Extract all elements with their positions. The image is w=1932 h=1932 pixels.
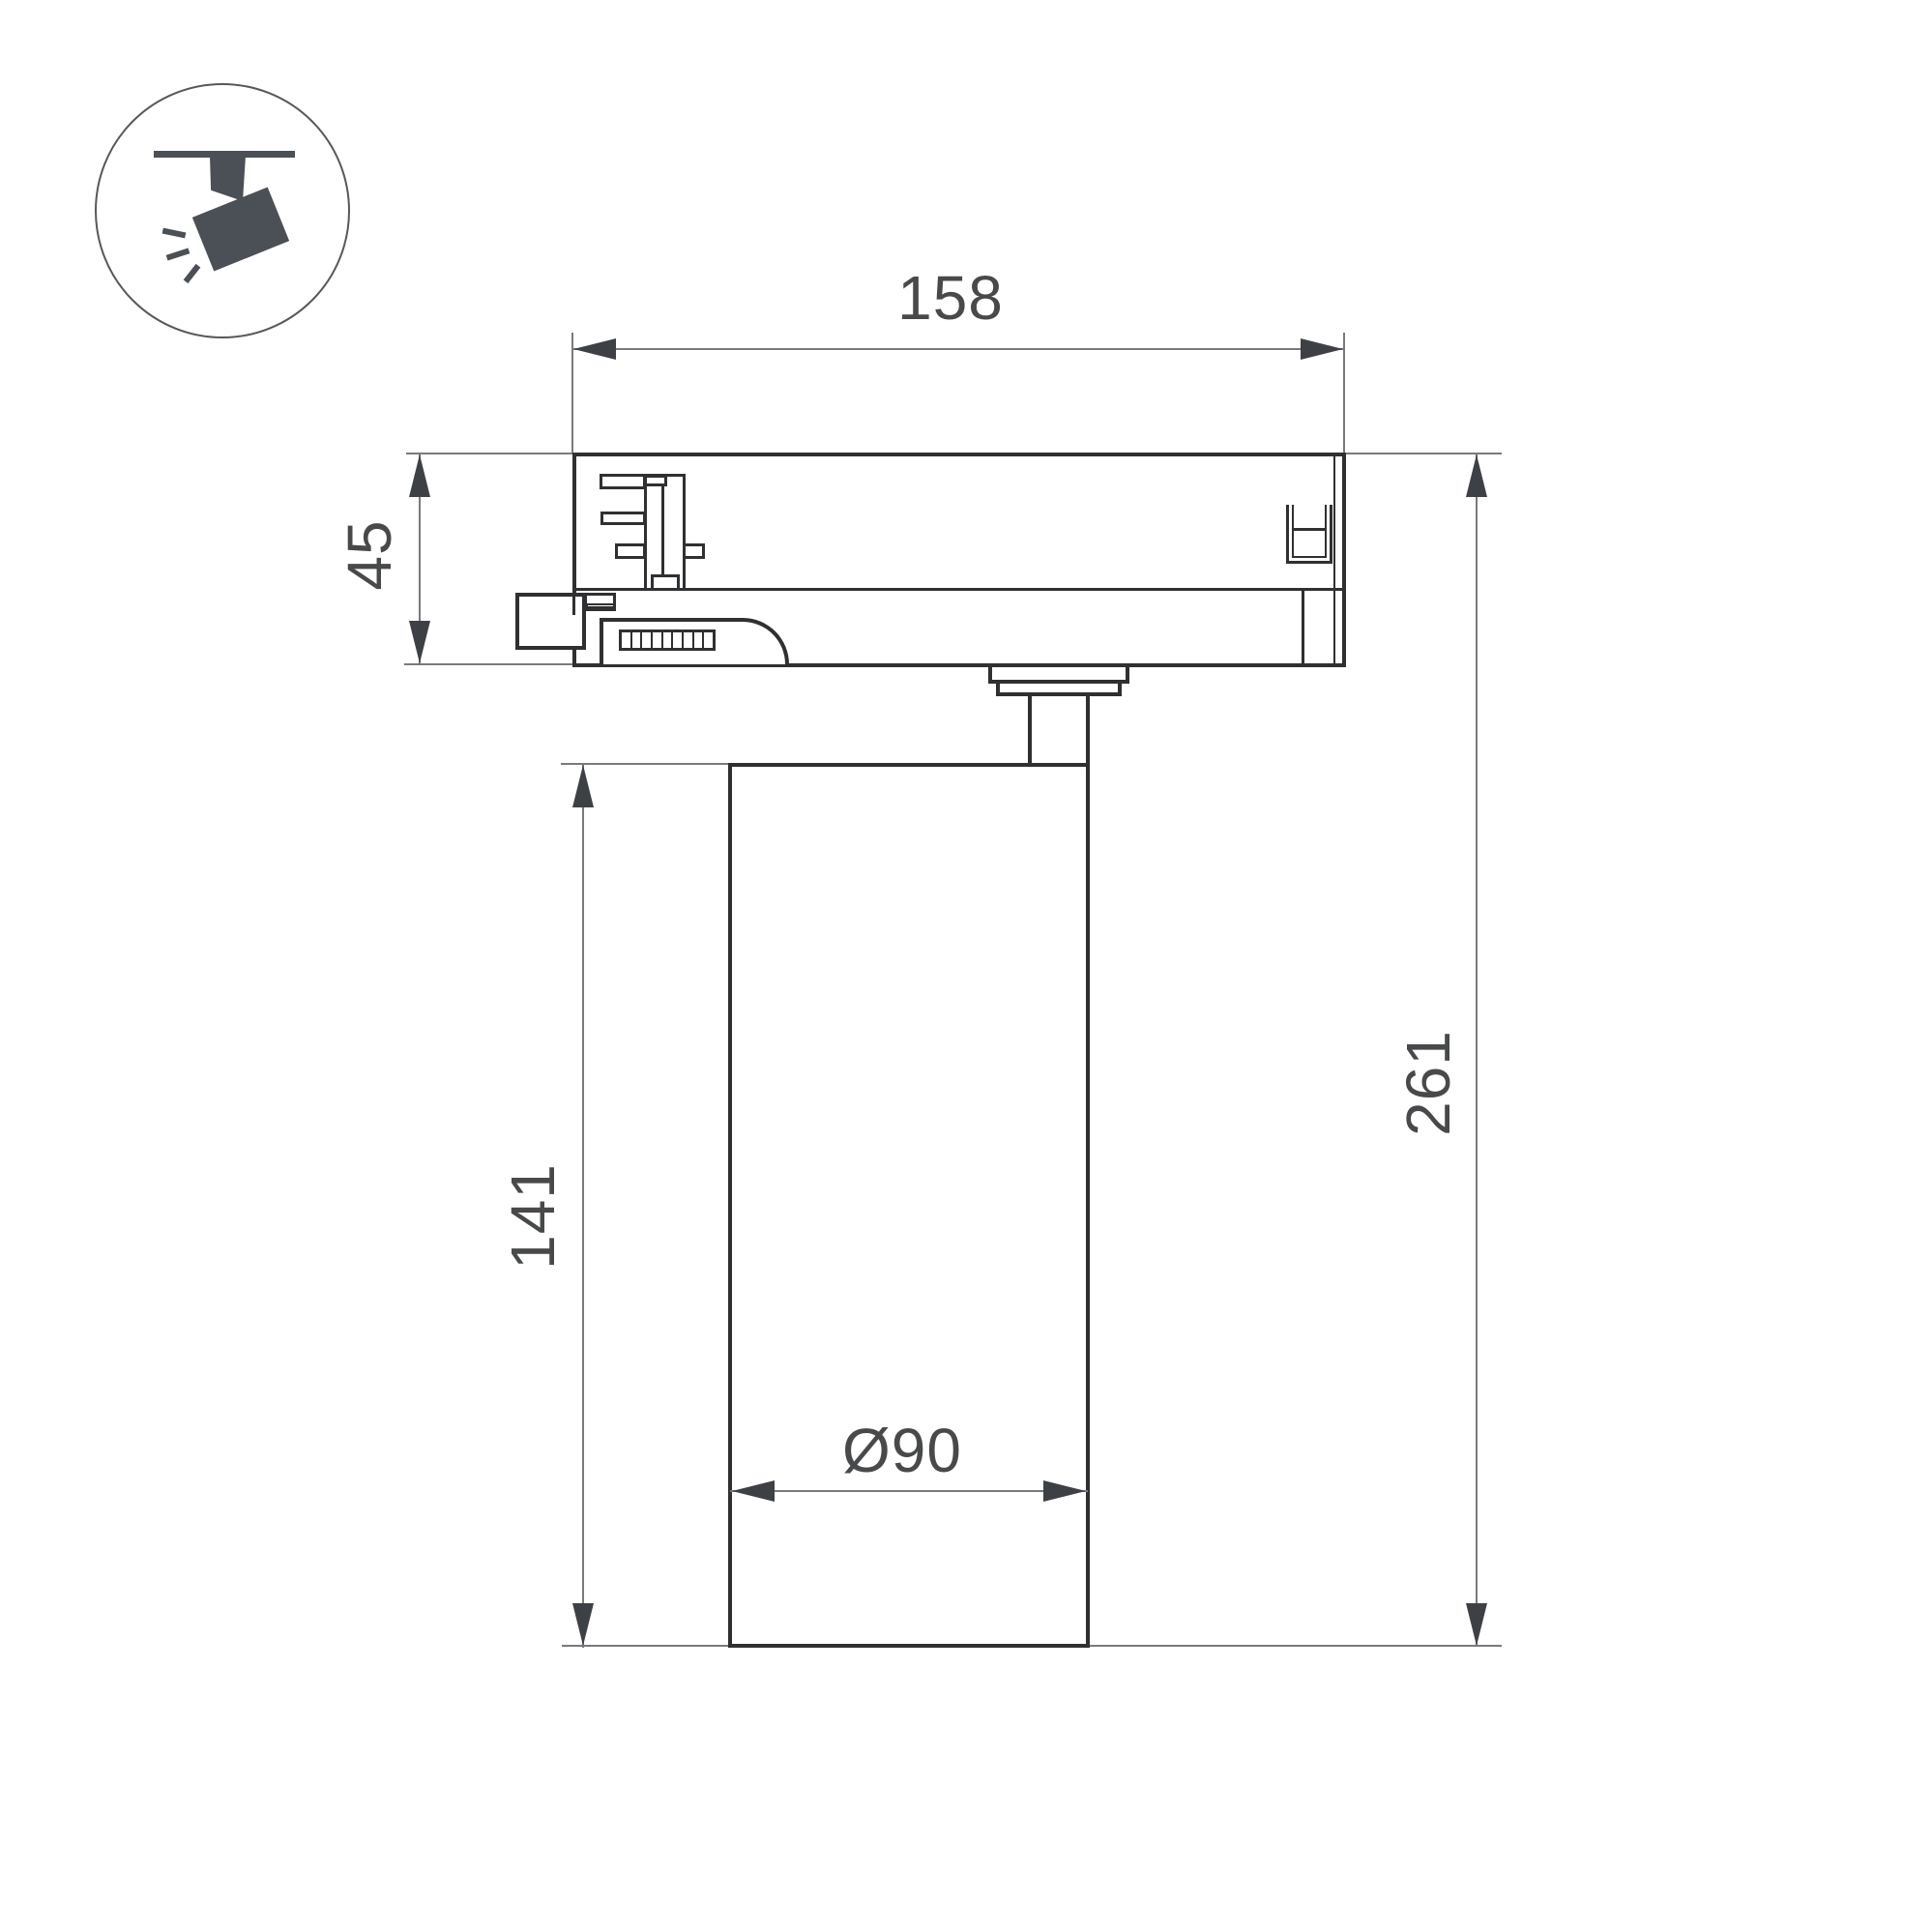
dim-158-arrow-right bbox=[1301, 338, 1343, 360]
dim-45-ext-bottom bbox=[404, 663, 572, 665]
adapter-divider-line bbox=[574, 588, 1344, 591]
latch-inner-line bbox=[572, 595, 575, 615]
flange-step-2 bbox=[996, 684, 1122, 696]
stem-right-edge bbox=[1086, 696, 1090, 765]
vent-cell bbox=[640, 632, 651, 648]
dim-d90-arrow-left bbox=[732, 1480, 775, 1502]
dim-261-label: 261 bbox=[1397, 1006, 1459, 1160]
contact-prong bbox=[600, 474, 646, 489]
icon-light-ray bbox=[166, 248, 190, 260]
contact-prong bbox=[600, 512, 646, 525]
dim-141-line bbox=[582, 763, 584, 1648]
vent-cell bbox=[661, 632, 672, 648]
icon-light-ray bbox=[162, 228, 187, 239]
vent-cell bbox=[682, 632, 692, 648]
flange-step-1 bbox=[988, 667, 1129, 684]
vent-cell bbox=[622, 632, 630, 648]
dim-261-arrow-down bbox=[1466, 1603, 1487, 1646]
dim-261-arrow-up bbox=[1466, 454, 1487, 497]
contact-foot bbox=[651, 574, 680, 591]
dim-45-label: 45 bbox=[338, 497, 400, 613]
dim-141-arrow-down bbox=[572, 1603, 594, 1646]
dim-158-line bbox=[572, 348, 1344, 350]
dim-158-label: 158 bbox=[873, 267, 1028, 329]
latch-block bbox=[515, 593, 586, 650]
cylinder-body bbox=[728, 763, 1090, 1648]
dim-45-arrow-down bbox=[409, 621, 430, 663]
dim-141-arrow-up bbox=[572, 765, 594, 807]
dim-d90-arrow-right bbox=[1043, 1480, 1086, 1502]
stem-left-edge bbox=[1028, 696, 1032, 765]
dim-45-arrow-up bbox=[409, 454, 430, 497]
dim-261-line bbox=[1476, 453, 1478, 1647]
vent-cell bbox=[671, 632, 682, 648]
icon-stem bbox=[210, 156, 246, 201]
icon-light-ray bbox=[184, 264, 201, 283]
adapter-right-inner-wall bbox=[1333, 456, 1335, 663]
contact-lug bbox=[683, 543, 705, 559]
dim-d90-label: Ø90 bbox=[805, 1420, 999, 1481]
dim-141-label: 141 bbox=[502, 1139, 564, 1294]
vent-grille bbox=[619, 629, 716, 651]
adapter-top-edge bbox=[572, 453, 1346, 456]
latch-bar bbox=[586, 603, 616, 611]
vent-cell bbox=[692, 632, 703, 648]
dim-158-arrow-left bbox=[573, 338, 616, 360]
dim-45-ext-top bbox=[406, 453, 572, 454]
contact-inner-line bbox=[661, 485, 664, 576]
adapter-right-edge bbox=[1342, 453, 1346, 667]
icon-spot-head bbox=[192, 187, 289, 271]
dim-261-ext-bottom bbox=[1090, 1645, 1502, 1647]
vent-cell bbox=[630, 632, 641, 648]
vent-cell bbox=[702, 632, 713, 648]
adapter-compartment-divider bbox=[1302, 588, 1304, 665]
dim-158-ext-right bbox=[1343, 333, 1345, 453]
dimension-drawing: 158 45 141 261 Ø90 bbox=[0, 0, 1932, 1932]
contact-prong bbox=[615, 543, 646, 559]
clip-bracket-inner bbox=[1292, 505, 1327, 558]
contact-body bbox=[644, 474, 686, 591]
track-spotlight-icon bbox=[95, 83, 350, 338]
clip-crossbar bbox=[1293, 528, 1326, 531]
dim-d90-line bbox=[730, 1490, 1088, 1492]
vent-cell bbox=[651, 632, 661, 648]
